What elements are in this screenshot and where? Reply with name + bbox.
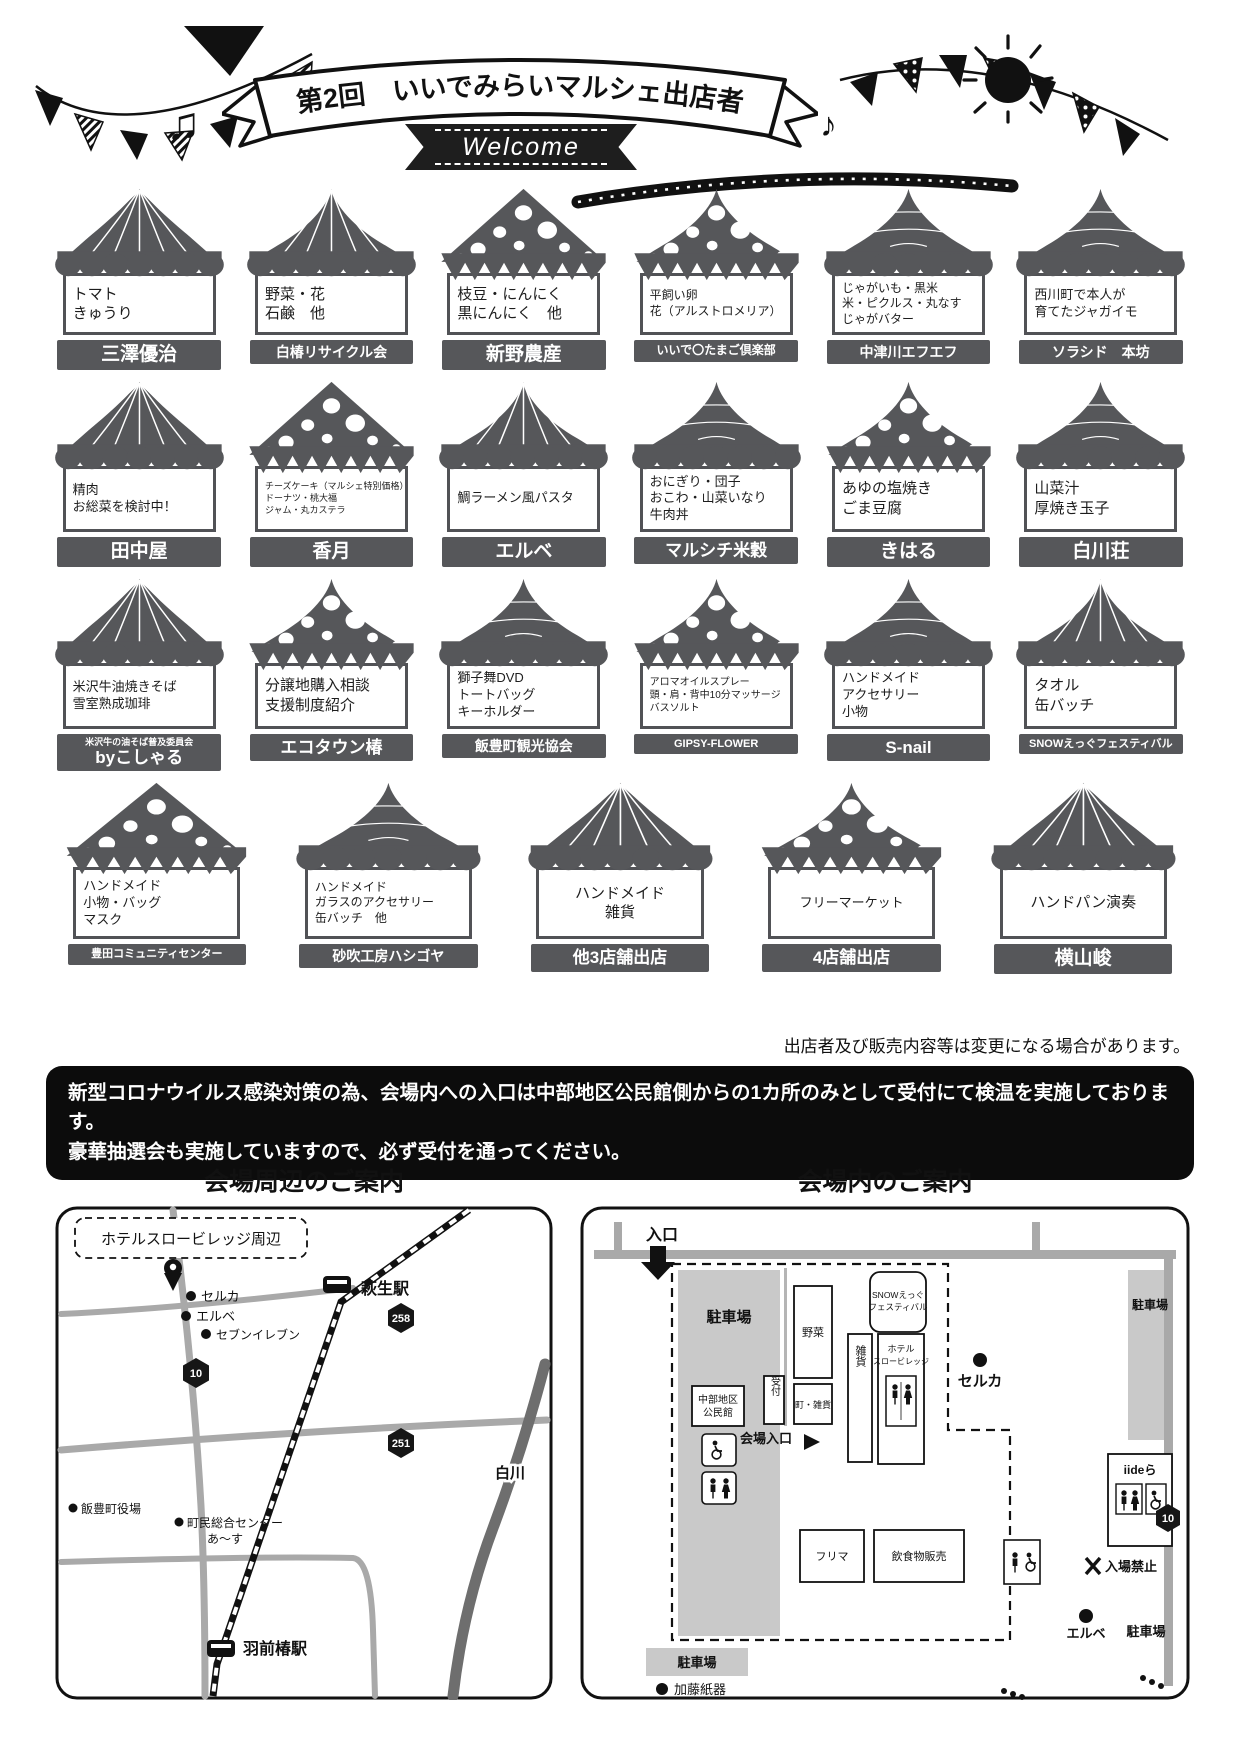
vendor-name: 豊田コミュニティセンター <box>70 948 244 961</box>
parking-label-bottom-left: 駐車場 <box>677 1655 716 1670</box>
vendor-name: きはる <box>829 541 989 563</box>
entrance-label: 入口 <box>646 1226 678 1244</box>
product-line: マスク <box>83 912 230 929</box>
vendor-tent: 野菜・花石鹸 他白椿リサイクル会 <box>248 186 414 370</box>
tent-roof-icon <box>62 780 251 876</box>
vendor-name: SNOWえっぐフェスティバル <box>1021 738 1181 751</box>
vendor-nameplate: マルシチ米穀 <box>634 537 798 565</box>
tent-products: 分譲地購入相談支援制度紹介 <box>255 663 408 729</box>
tent-roof-icon <box>630 379 803 475</box>
poi-seruka: セルカ <box>958 1373 1003 1390</box>
product-line: 獅子舞DVD <box>457 670 590 687</box>
vendor-nameplate: 中津川エフエフ <box>827 340 991 364</box>
vendor-name: 飯豊町観光協会 <box>444 738 604 754</box>
hotel-area-box: ホテルスロービレッジ周辺 <box>75 1218 307 1258</box>
vendor-name: 白川荘 <box>1021 541 1181 563</box>
tent-roof-icon <box>1014 186 1187 282</box>
vendor-nameplate: 豊田コミュニティセンター <box>68 944 246 965</box>
product-line: じゃがいも・黒米 <box>842 281 975 297</box>
vendor-nameplate: 4店舗出店 <box>762 944 940 972</box>
vendor-nameplate: 飯豊町観光協会 <box>442 734 606 758</box>
vendor-name: ソラシド 本坊 <box>1021 344 1181 360</box>
vendor-nameplate: 田中屋 <box>57 537 221 567</box>
tent-products: ハンドメイドアクセサリー小物 <box>832 663 985 729</box>
poi-seruka: セルカ <box>201 1289 240 1304</box>
poi-dot <box>201 1329 211 1339</box>
tent-roof-icon <box>822 186 995 282</box>
svg-text:フェスティバル: フェスティバル <box>869 1302 928 1312</box>
vendor-nameplate: 米沢牛の油そば普及委員会byこしゃる <box>57 734 221 771</box>
poi-dot <box>186 1291 196 1301</box>
vendor-nameplate: 新野農産 <box>442 340 606 370</box>
product-line: トートバッグ <box>457 687 590 704</box>
poi-seven-eleven: セブンイレブン <box>216 1327 300 1342</box>
product-line: ガラスのアクセサリー <box>315 895 462 911</box>
product-line: キーホルダー <box>457 704 590 721</box>
product-line: フリーマーケット <box>778 895 925 912</box>
restroom-icon <box>702 1472 736 1504</box>
vendor-nameplate: いいで〇たまご倶楽部 <box>634 340 798 362</box>
poi-erube: エルベ <box>1066 1626 1105 1641</box>
product-line: タオル <box>1034 676 1167 696</box>
product-line: 山菜汁 <box>1034 479 1167 499</box>
vendor-tent: 分譲地購入相談支援制度紹介エコタウン椿 <box>248 576 414 771</box>
tent-roof-icon <box>989 780 1178 876</box>
vendor-name: S-nail <box>829 738 989 758</box>
tent-roof-icon <box>1014 576 1187 672</box>
product-line: おにぎり・団子 <box>650 474 783 491</box>
parking-label-bottom-right: 駐車場 <box>1126 1624 1165 1639</box>
svg-text:251: 251 <box>392 1438 410 1450</box>
vendor-nameplate: 他3店舗出店 <box>531 944 709 972</box>
hotel-slow-village: ホテル スロービレッジ <box>873 1334 929 1464</box>
product-line: 野菜・花 <box>265 285 398 305</box>
vendor-nameplate: 三澤優治 <box>57 340 221 370</box>
product-line: ハンドメイド <box>83 878 230 895</box>
product-line: 支援制度紹介 <box>265 696 398 716</box>
tent-products: ハンドメイドガラスのアクセサリー缶バッチ 他 <box>305 867 472 939</box>
venue-map: 入口 駐車場 駐車場 野菜 SNOWえっぐ フェスティバル 雑貨 ホテル スロー… <box>580 1206 1190 1700</box>
tent-roof-icon <box>437 379 610 475</box>
product-line: 缶バッチ 他 <box>315 911 462 927</box>
svg-text:10: 10 <box>1162 1513 1174 1525</box>
tent-row-2: 精肉お総菜を検討中！田中屋チーズケーキ（マルシェ特別価格）ドーナツ・桃大福ジャム… <box>0 379 1240 567</box>
tent-row-1: トマトきゅうり三澤優治野菜・花石鹸 他白椿リサイクル会枝豆・にんにく黒にんにく … <box>0 186 1240 370</box>
vendor-nameplate: GIPSY-FLOWER <box>634 734 798 755</box>
vendor-tent: タオル缶バッチSNOWえっぐフェスティバル <box>1018 576 1184 771</box>
product-line: 雪室熟成珈琲 <box>73 696 206 713</box>
vendor-tent: ハンドメイドガラスのアクセサリー缶バッチ 他砂吹工房ハシゴヤ <box>298 780 480 974</box>
product-line: 精肉 <box>73 482 206 499</box>
product-line: 平飼い卵 <box>650 288 783 304</box>
tent-roof-icon <box>437 186 610 282</box>
flyer-page: 第2回 いいでみらいマルシェ出店者 Welcome ♫ ♪ トマトきゅうり三澤優… <box>0 0 1240 1754</box>
poi-dot <box>175 1518 184 1527</box>
product-line: 黒にんにく 他 <box>457 304 590 324</box>
welcome-label: Welcome <box>462 133 580 162</box>
vendor-tent: 精肉お総菜を検討中！田中屋 <box>56 379 222 567</box>
tent-products: あゆの塩焼きごま豆腐 <box>832 466 985 532</box>
vendor-name: 4店舗出店 <box>764 948 938 968</box>
stall-goods: 雑貨 <box>848 1334 872 1462</box>
vendor-name: いいで〇たまご倶楽部 <box>636 344 796 358</box>
product-line: きゅうり <box>73 304 206 324</box>
poi-dot <box>69 1504 78 1513</box>
tent-roof-icon <box>53 576 226 672</box>
stall-town-goods: 町・雑貨 <box>794 1384 832 1424</box>
vendor-nameplate: 香月 <box>250 537 414 567</box>
tent-products: ハンドパン演奏 <box>1000 867 1167 939</box>
product-line: 頭・肩・背中10分マッサージ <box>650 689 783 702</box>
tent-products: 精肉お総菜を検討中！ <box>63 466 216 532</box>
product-line: ハンドメイド <box>842 670 975 687</box>
poi-center-line1: 町民総合センター <box>187 1515 283 1530</box>
train-station-icon <box>323 1276 351 1293</box>
tent-roof-icon <box>53 186 226 282</box>
tent-roof-icon <box>822 379 995 475</box>
product-line: お総菜を検討中！ <box>73 499 206 516</box>
product-line: おこわ・山菜いなり <box>650 490 783 507</box>
product-line: ごま豆腐 <box>842 499 975 519</box>
hotel-area-label: ホテルスロービレッジ周辺 <box>101 1231 281 1248</box>
vendor-name: 香月 <box>252 541 412 563</box>
vendor-name: 白椿リサイクル会 <box>252 344 412 360</box>
poi-dot <box>181 1311 191 1321</box>
tent-products: 山菜汁厚焼き玉子 <box>1024 466 1177 532</box>
svg-text:iideら: iideら <box>1124 1463 1157 1477</box>
vendor-tent: おにぎり・団子おこわ・山菜いなり牛肉丼マルシチ米穀 <box>633 379 799 567</box>
tent-roof-icon <box>630 576 803 672</box>
svg-text:入場禁止: 入場禁止 <box>1105 1559 1157 1574</box>
vendor-name: 他3店舗出店 <box>533 948 707 968</box>
product-line: じゃがバター <box>842 312 975 328</box>
tent-roof-icon <box>245 576 418 672</box>
reception-box: 受付 <box>764 1376 784 1424</box>
svg-text:野菜: 野菜 <box>802 1326 824 1339</box>
vendor-nameplate: ソラシド 本坊 <box>1019 340 1183 364</box>
vendor-tent: チーズケーキ（マルシェ特別価格）ドーナツ・桃大福ジャム・丸カステラ香月 <box>248 379 414 567</box>
product-line: 枝豆・にんにく <box>457 285 590 305</box>
svg-text:フリマ: フリマ <box>816 1551 849 1563</box>
product-line: ハンドパン演奏 <box>1010 893 1157 913</box>
product-line: ドーナツ・桃大福 <box>265 493 398 505</box>
sun-icon <box>958 32 1058 124</box>
kominkan-building: 中部地区 公民館 <box>692 1386 744 1426</box>
vendor-name: 新野農産 <box>444 344 604 366</box>
tent-products: トマトきゅうり <box>63 273 216 335</box>
product-line: 米・ピクルス・丸なす <box>842 296 975 312</box>
svg-text:スロービレッジ: スロービレッジ <box>873 1357 929 1366</box>
tent-products: おにぎり・団子おこわ・山菜いなり牛肉丼 <box>640 466 793 532</box>
poi-town-hall: 飯豊町役場 <box>81 1501 141 1516</box>
parking-label-left: 駐車場 <box>706 1308 751 1326</box>
stall-vegetables: 野菜 <box>794 1286 832 1378</box>
product-line: アクセサリー <box>842 687 975 704</box>
vendor-name: 田中屋 <box>59 541 219 563</box>
station-hagiu: 萩生駅 <box>360 1279 410 1298</box>
svg-text:ホテル: ホテル <box>887 1344 914 1354</box>
music-note-icon: ♪ <box>820 106 837 145</box>
vendor-tent: 鯛ラーメン風パスタエルベ <box>441 379 607 567</box>
svg-text:258: 258 <box>392 1313 410 1325</box>
tent-products: ハンドメイド雑貨 <box>536 867 703 939</box>
product-line: 小物 <box>842 704 975 721</box>
tent-products: ハンドメイド小物・バッグマスク <box>73 867 240 939</box>
vendor-nameplate: 白川荘 <box>1019 537 1183 567</box>
vendor-name: 横山峻 <box>996 948 1170 970</box>
product-line: 雑貨 <box>546 903 693 923</box>
toilet-box <box>1004 1540 1040 1584</box>
product-line: 花（アルストロメリア） <box>650 304 783 320</box>
vendor-tent: 山菜汁厚焼き玉子白川荘 <box>1018 379 1184 567</box>
svg-text:雑貨: 雑貨 <box>854 1344 867 1368</box>
iidera-building: iideら <box>1108 1454 1172 1546</box>
vendor-name: エコタウン椿 <box>252 738 412 758</box>
vendor-name: エルベ <box>444 541 604 563</box>
tent-products: 枝豆・にんにく黒にんにく 他 <box>447 273 600 335</box>
tent-roof-icon <box>437 576 610 672</box>
vendor-tent: ハンドパン演奏横山峻 <box>992 780 1174 974</box>
vendor-name: 三澤優治 <box>59 344 219 366</box>
vendor-tent: ハンドメイド雑貨他3店舗出店 <box>529 780 711 974</box>
vendor-tent-grid: トマトきゅうり三澤優治野菜・花石鹸 他白椿リサイクル会枝豆・にんにく黒にんにく … <box>0 186 1240 983</box>
product-line: 厚焼き玉子 <box>1034 499 1167 519</box>
svg-text:SNOWえっぐ: SNOWえっぐ <box>872 1290 924 1300</box>
train-station-icon <box>207 1640 235 1657</box>
svg-text:飲食物販売: 飲食物販売 <box>892 1549 947 1563</box>
product-line: ジャム・丸カステラ <box>265 505 398 517</box>
tent-roof-icon <box>294 780 483 876</box>
vendor-nameplate: エルベ <box>442 537 606 567</box>
tent-products: 西川町で本人が育てたジャガイモ <box>1024 273 1177 335</box>
svg-text:中部地区: 中部地区 <box>698 1393 738 1406</box>
poi-dot <box>656 1683 668 1695</box>
tent-row-3: 米沢牛油焼きそば雪室熟成珈琲米沢牛の油そば普及委員会byこしゃる分譲地購入相談支… <box>0 576 1240 771</box>
vendor-tent: ハンドメイド小物・バッグマスク豊田コミュニティセンター <box>66 780 248 974</box>
vendor-tent: アロマオイルスプレー頭・肩・背中10分マッサージバスソルトGIPSY-FLOWE… <box>633 576 799 771</box>
tent-products: 獅子舞DVDトートバッグキーホルダー <box>447 663 600 729</box>
product-line: 小物・バッグ <box>83 895 230 912</box>
product-line: 育てたジャガイモ <box>1034 304 1167 321</box>
product-line: 石鹸 他 <box>265 304 398 324</box>
vendor-tent: 西川町で本人が育てたジャガイモソラシド 本坊 <box>1018 186 1184 370</box>
product-line: アロマオイルスプレー <box>650 676 783 689</box>
svg-text:町・雑貨: 町・雑貨 <box>795 1399 831 1410</box>
vendor-tent: 米沢牛油焼きそば雪室熟成珈琲米沢牛の油そば普及委員会byこしゃる <box>56 576 222 771</box>
vendor-name: byこしゃる <box>59 748 219 768</box>
tent-roof-icon <box>630 186 803 282</box>
poi-erube: エルベ <box>196 1309 235 1324</box>
station-uzen-tsubaki: 羽前椿駅 <box>243 1639 308 1658</box>
vendor-tent: 枝豆・にんにく黒にんにく 他新野農産 <box>441 186 607 370</box>
tent-row-4: ハンドメイド小物・バッグマスク豊田コミュニティセンターハンドメイドガラスのアクセ… <box>0 780 1240 974</box>
tent-products: フリーマーケット <box>768 867 935 939</box>
vendor-name: 中津川エフエフ <box>829 344 989 360</box>
covid-notice-line1: 新型コロナウイルス感染対策の為、会場内への入口は中部地区公民館側からの1カ所のみ… <box>68 1079 1172 1138</box>
poi-kato: 加藤紙器 <box>674 1682 726 1697</box>
svg-text:受付: 受付 <box>769 1376 781 1397</box>
tent-products: タオル缶バッチ <box>1024 663 1177 729</box>
vendor-tent: フリーマーケット4店舗出店 <box>761 780 943 974</box>
tent-roof-icon <box>53 379 226 475</box>
vendor-nameplate: 白椿リサイクル会 <box>250 340 414 364</box>
vendor-nameplate: きはる <box>827 537 991 567</box>
music-note-icon: ♫ <box>166 96 201 150</box>
area-map-title: 会場周辺のご案内 <box>55 1162 553 1198</box>
poi-center-line2: あ〜す <box>207 1532 243 1546</box>
product-line: トマト <box>73 285 206 305</box>
product-line: バスソルト <box>650 702 783 715</box>
tent-products: じゃがいも・黒米米・ピクルス・丸なすじゃがバター <box>832 273 985 335</box>
vendor-nameplate: SNOWえっぐフェスティバル <box>1019 734 1183 755</box>
vendor-tent: 獅子舞DVDトートバッグキーホルダー飯豊町観光協会 <box>441 576 607 771</box>
tent-products: 米沢牛油焼きそば雪室熟成珈琲 <box>63 663 216 729</box>
product-line: 鯛ラーメン風パスタ <box>457 490 590 507</box>
tent-roof-icon <box>245 379 418 475</box>
product-line: 分譲地購入相談 <box>265 676 398 696</box>
product-line: 牛肉丼 <box>650 507 783 524</box>
vendor-nameplate: 砂吹工房ハシゴヤ <box>299 944 477 968</box>
vendor-nameplate: エコタウン椿 <box>250 734 414 762</box>
vendor-tent: 平飼い卵花（アルストロメリア）いいで〇たまご倶楽部 <box>633 186 799 370</box>
poi-dot <box>1079 1609 1093 1623</box>
vendor-nameplate: S-nail <box>827 734 991 762</box>
product-line: 缶バッチ <box>1034 696 1167 716</box>
svg-text:10: 10 <box>190 1368 202 1380</box>
venue-gate-label: 会場入口 <box>740 1431 792 1446</box>
stall-flea: フリマ <box>800 1530 864 1582</box>
venue-map-title: 会場内のご案内 <box>580 1162 1190 1198</box>
vendor-tent: ハンドメイドアクセサリー小物S-nail <box>825 576 991 771</box>
vendor-tent: トマトきゅうり三澤優治 <box>56 186 222 370</box>
tent-roof-icon <box>245 186 418 282</box>
accessible-restroom-icon <box>702 1434 736 1466</box>
change-note: 出店者及び販売内容等は変更になる場合があります。 <box>784 1032 1190 1057</box>
vendor-subname: 米沢牛の油そば普及委員会 <box>59 738 219 748</box>
vendor-name: 砂吹工房ハシゴヤ <box>301 948 475 964</box>
vendor-tent: じゃがいも・黒米米・ピクルス・丸なすじゃがバター中津川エフエフ <box>825 186 991 370</box>
vendor-nameplate: 横山峻 <box>994 944 1172 974</box>
product-line: 米沢牛油焼きそば <box>73 679 206 696</box>
river-label: 白川 <box>495 1464 525 1482</box>
area-map: ホテルスロービレッジ周辺 セルカ エルベ セブンイレブン 萩生駅 258 10 … <box>55 1206 553 1700</box>
svg-text:公民館: 公民館 <box>703 1406 733 1419</box>
tent-roof-icon <box>822 576 995 672</box>
tent-roof-icon <box>757 780 946 876</box>
product-line: あゆの塩焼き <box>842 479 975 499</box>
product-line: ハンドメイド <box>315 880 462 896</box>
vendor-tent: あゆの塩焼きごま豆腐きはる <box>825 379 991 567</box>
vendor-name: GIPSY-FLOWER <box>636 738 796 751</box>
tent-roof-icon <box>526 780 715 876</box>
parking-label-right: 駐車場 <box>1132 1297 1168 1312</box>
stall-food: 飲食物販売 <box>874 1530 964 1582</box>
product-line: チーズケーキ（マルシェ特別価格） <box>265 481 398 493</box>
welcome-ribbon: Welcome <box>405 124 637 170</box>
tent-products: 野菜・花石鹸 他 <box>255 273 408 335</box>
product-line: ハンドメイド <box>546 884 693 904</box>
tent-products: 平飼い卵花（アルストロメリア） <box>640 273 793 335</box>
vendor-name: マルシチ米穀 <box>636 541 796 561</box>
poi-dot <box>973 1353 987 1367</box>
stall-snow-egg: SNOWえっぐ フェスティバル <box>869 1272 928 1332</box>
tent-products: アロマオイルスプレー頭・肩・背中10分マッサージバスソルト <box>640 663 793 729</box>
tent-roof-icon <box>1014 379 1187 475</box>
product-line: 西川町で本人が <box>1034 287 1167 304</box>
tent-products: チーズケーキ（マルシェ特別価格）ドーナツ・桃大福ジャム・丸カステラ <box>255 466 408 532</box>
tent-products: 鯛ラーメン風パスタ <box>447 466 600 532</box>
